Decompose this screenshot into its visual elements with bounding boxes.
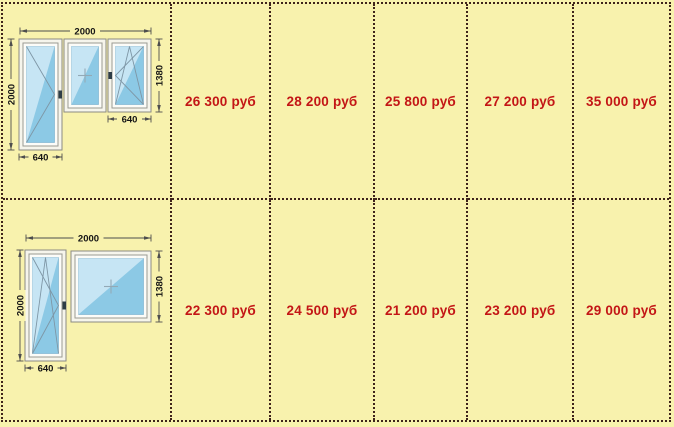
price-cell: 24 500 руб [271,200,375,420]
dim-door-width: 640 [19,152,62,164]
price-cell: 29 000 руб [574,200,669,420]
door-handle-icon [59,91,63,99]
price-cell: 23 200 руб [468,200,574,420]
dim-label-window-width: 640 [122,115,138,126]
price-label: 29 000 руб [586,303,657,318]
diagram-cell-balcony-two-windows: 2000 2000 1380 [3,4,172,200]
balcony-block-diagram-2: 2000 2000 1380 [3,200,170,420]
dim-window-height: 1380 [154,251,166,322]
price-cell: 35 000 руб [574,4,669,200]
dim-total-width: 2000 [26,232,151,245]
price-label: 24 500 руб [287,303,358,318]
dim-total-width: 2000 [20,25,151,38]
price-label: 23 200 руб [485,303,556,318]
price-cell: 26 300 руб [172,4,271,200]
dim-window-width: 640 [108,114,151,126]
door-handle-icon [63,302,67,310]
price-label: 21 200 руб [385,303,456,318]
price-label: 28 200 руб [287,94,358,109]
dim-label-door-height: 2000 [16,295,27,316]
dim-door-height: 2000 [6,39,18,150]
pricing-table: 2000 2000 1380 [1,2,671,422]
dim-window-height: 1380 [154,39,166,112]
dim-label-total-width: 2000 [74,27,95,38]
price-cell: 22 300 руб [172,200,271,420]
balcony-door-turn [19,39,62,150]
price-label: 25 800 руб [385,94,456,109]
price-label: 35 000 руб [586,94,657,109]
fixed-window [64,39,106,112]
dim-label-total-width: 2000 [78,234,99,245]
price-label: 27 200 руб [485,94,556,109]
price-cell: 27 200 руб [468,4,574,200]
price-cell: 28 200 руб [271,4,375,200]
dim-door-width: 640 [25,363,66,375]
fixed-window [71,251,151,322]
price-cell: 25 800 руб [375,4,468,200]
price-cell: 21 200 руб [375,200,468,420]
dim-label-door-width: 640 [33,153,49,164]
balcony-door-turn-tilt [25,250,66,361]
dim-label-window-height: 1380 [155,276,166,297]
dim-label-door-width: 640 [38,364,54,375]
dim-label-window-height: 1380 [155,65,166,86]
balcony-block-diagram-1: 2000 2000 1380 [3,4,170,196]
price-label: 22 300 руб [185,303,256,318]
turn-tilt-window [108,39,151,112]
window-handle-icon [109,72,113,79]
price-label: 26 300 руб [185,94,256,109]
diagram-cell-balcony-one-window: 2000 2000 1380 [3,200,172,420]
dim-label-door-height: 2000 [7,84,18,105]
